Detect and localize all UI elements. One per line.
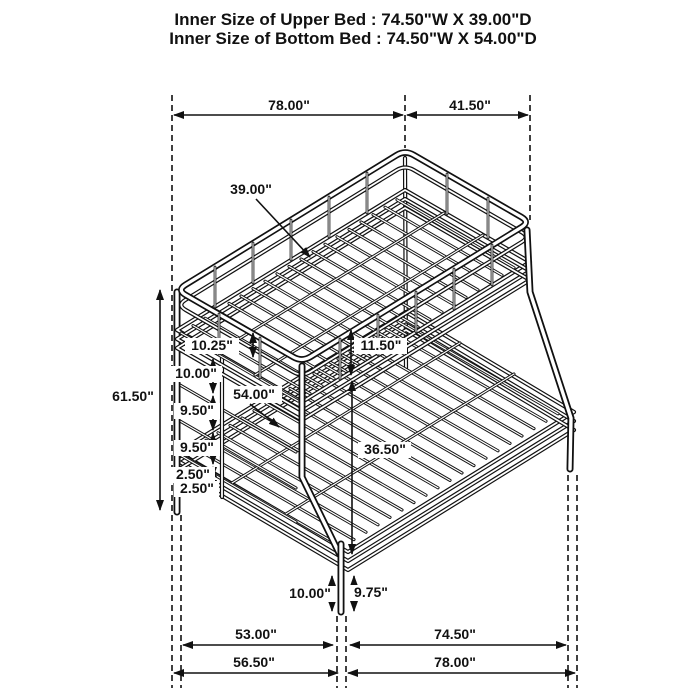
- dim-label-bottom-outer-width: 78.00": [434, 654, 476, 670]
- dim-label-ladder-3: 9.50": [180, 402, 214, 418]
- dim-label-clearance: 36.50": [364, 441, 406, 457]
- dim-label-bottom-inner-depth: 53.00": [235, 626, 277, 642]
- dim-label-upper-bed-depth: 39.00": [230, 181, 272, 197]
- right-post: [527, 230, 571, 469]
- dim-label-ladder-2: 10.00": [175, 365, 217, 381]
- title-bottom-bed-size: Inner Size of Bottom Bed : 74.50"W X 54.…: [169, 29, 537, 48]
- title-upper-bed-size: Inner Size of Upper Bed : 74.50"W X 39.0…: [174, 10, 531, 29]
- dim-label-top-depth: 41.50": [449, 97, 491, 113]
- bunk-bed-dimension-diagram: Inner Size of Upper Bed : 74.50"W X 39.0…: [0, 0, 700, 700]
- dim-label-ladder-1: 10.25": [191, 337, 233, 353]
- dim-label-front-leg: 10.00": [289, 585, 331, 601]
- dim-label-lower-bed-depth: 54.00": [233, 386, 275, 402]
- diagram-page: Inner Size of Upper Bed : 74.50"W X 39.0…: [0, 0, 700, 700]
- bunk-bed-drawing: [177, 153, 574, 612]
- dim-label-ladder-4: 9.50": [180, 439, 214, 455]
- dim-label-bottom-outer-depth: 56.50": [233, 654, 275, 670]
- dim-label-bottom-inner-width: 74.50": [434, 626, 476, 642]
- dim-label-ladder-6: 2.50": [180, 480, 214, 496]
- dim-label-side-leg: 9.75": [354, 584, 388, 600]
- dim-label-overall-height: 61.50": [112, 388, 154, 404]
- dim-label-gap: 11.50": [361, 337, 402, 353]
- dim-label-top-width: 78.00": [268, 97, 310, 113]
